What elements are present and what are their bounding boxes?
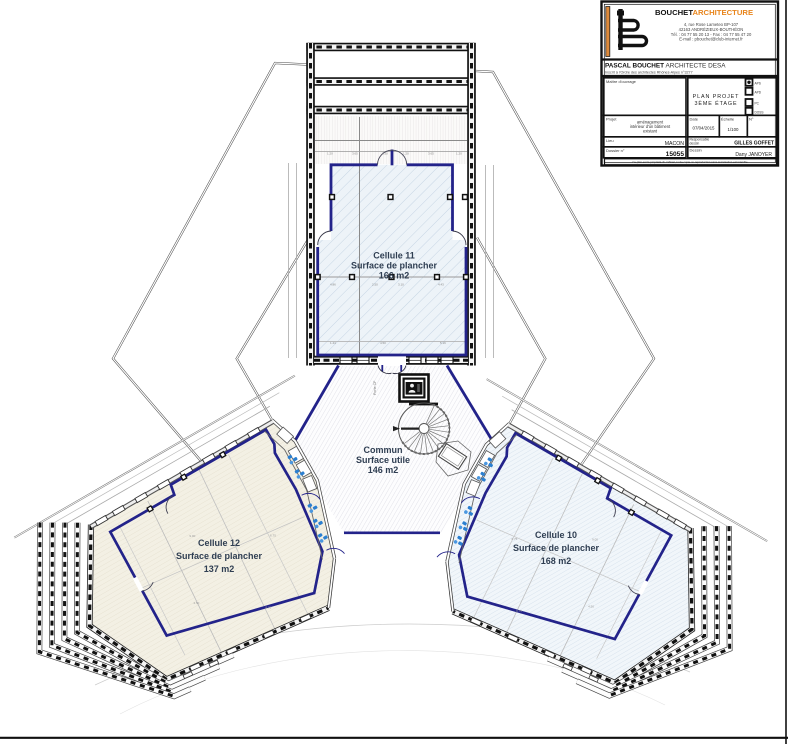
svg-text:Inscrit à l'Ordre des architec: Inscrit à l'Ordre des architectes Rhônes… bbox=[605, 71, 693, 75]
svg-text:3ÈME ÉTAGE: 3ÈME ÉTAGE bbox=[694, 100, 737, 107]
svg-text:Commun: Commun bbox=[364, 445, 403, 455]
svg-text:1.50: 1.50 bbox=[382, 152, 388, 156]
svg-text:E-mail : pbouchet@club-interne: E-mail : pbouchet@club-internet.fr bbox=[679, 37, 743, 42]
svg-text:168 m2: 168 m2 bbox=[541, 556, 572, 566]
svg-text:Projet: Projet bbox=[606, 116, 617, 121]
svg-text:MACON: MACON bbox=[665, 141, 685, 147]
svg-text:4.50: 4.50 bbox=[588, 604, 594, 608]
svg-text:Date: Date bbox=[690, 116, 699, 121]
svg-text:Cellule 12: Cellule 12 bbox=[198, 538, 240, 548]
svg-text:6.75: 6.75 bbox=[511, 537, 517, 541]
svg-text:DOSS: DOSS bbox=[755, 110, 764, 114]
svg-text:Dossier n°: Dossier n° bbox=[606, 148, 625, 153]
svg-text:Surface de plancher: Surface de plancher bbox=[176, 551, 263, 561]
svg-text:GILLES GOFFET: GILLES GOFFET bbox=[734, 141, 774, 147]
svg-text:existant: existant bbox=[643, 129, 658, 134]
svg-text:Lieu: Lieu bbox=[606, 138, 614, 143]
svg-text:BOUCHETARCHITECTURE: BOUCHETARCHITECTURE bbox=[655, 8, 753, 17]
svg-text:Cellule 10: Cellule 10 bbox=[535, 530, 577, 540]
svg-text:166 m2: 166 m2 bbox=[379, 271, 410, 281]
svg-text:Porte CF: Porte CF bbox=[373, 380, 377, 395]
svg-text:APS: APS bbox=[755, 81, 761, 85]
svg-text:N°: N° bbox=[749, 116, 754, 121]
svg-text:PLAN PROJET: PLAN PROJET bbox=[693, 94, 740, 100]
svg-text:Surface utile: Surface utile bbox=[356, 455, 410, 465]
svg-text:Échelle: Échelle bbox=[721, 116, 735, 121]
svg-text:146 m2: 146 m2 bbox=[368, 465, 399, 475]
svg-text:Surface de plancher: Surface de plancher bbox=[513, 543, 600, 553]
svg-text:137 m2: 137 m2 bbox=[204, 564, 235, 574]
svg-text:Maître d'ouvrage: Maître d'ouvrage bbox=[606, 79, 637, 84]
svg-text:4.43: 4.43 bbox=[438, 283, 444, 287]
svg-text:APD: APD bbox=[755, 90, 762, 94]
svg-text:3.65: 3.65 bbox=[352, 152, 358, 156]
svg-text:15055: 15055 bbox=[666, 151, 685, 158]
svg-text:6.75: 6.75 bbox=[270, 534, 276, 538]
svg-text:Cellule 11: Cellule 11 bbox=[373, 251, 415, 261]
svg-text:9.00: 9.00 bbox=[592, 537, 598, 541]
svg-text:PASCAL BOUCHET ARCHITECTE DESA: PASCAL BOUCHET ARCHITECTE DESA bbox=[605, 63, 726, 70]
svg-text:Dessin: Dessin bbox=[690, 148, 702, 153]
svg-text:07/04/2015: 07/04/2015 bbox=[693, 126, 716, 131]
svg-text:Ce plan est la propriété du ca: Ce plan est la propriété du cabinet, tou… bbox=[632, 160, 748, 164]
svg-text:2.50: 2.50 bbox=[372, 283, 378, 287]
svg-text:4.50: 4.50 bbox=[380, 341, 386, 345]
svg-text:5.16: 5.16 bbox=[440, 341, 446, 345]
svg-text:8.75: 8.75 bbox=[265, 606, 271, 610]
svg-text:3.10: 3.10 bbox=[398, 283, 404, 287]
svg-text:8.75: 8.75 bbox=[516, 609, 522, 613]
svg-text:1/100: 1/100 bbox=[728, 127, 740, 132]
svg-text:3.65: 3.65 bbox=[428, 152, 434, 156]
svg-text:1.44: 1.44 bbox=[330, 341, 336, 345]
svg-text:Surface de plancher: Surface de plancher bbox=[351, 261, 438, 271]
svg-text:PC: PC bbox=[755, 102, 760, 106]
svg-text:dessin: dessin bbox=[690, 141, 700, 145]
svg-text:1.20: 1.20 bbox=[327, 152, 333, 156]
svg-text:1.20: 1.20 bbox=[456, 152, 462, 156]
svg-text:4.50: 4.50 bbox=[193, 601, 199, 605]
svg-text:1.20: 1.20 bbox=[403, 152, 409, 156]
svg-text:Dany JANOYER: Dany JANOYER bbox=[735, 152, 772, 158]
svg-text:4.86: 4.86 bbox=[330, 283, 336, 287]
svg-text:9.00: 9.00 bbox=[189, 534, 195, 538]
